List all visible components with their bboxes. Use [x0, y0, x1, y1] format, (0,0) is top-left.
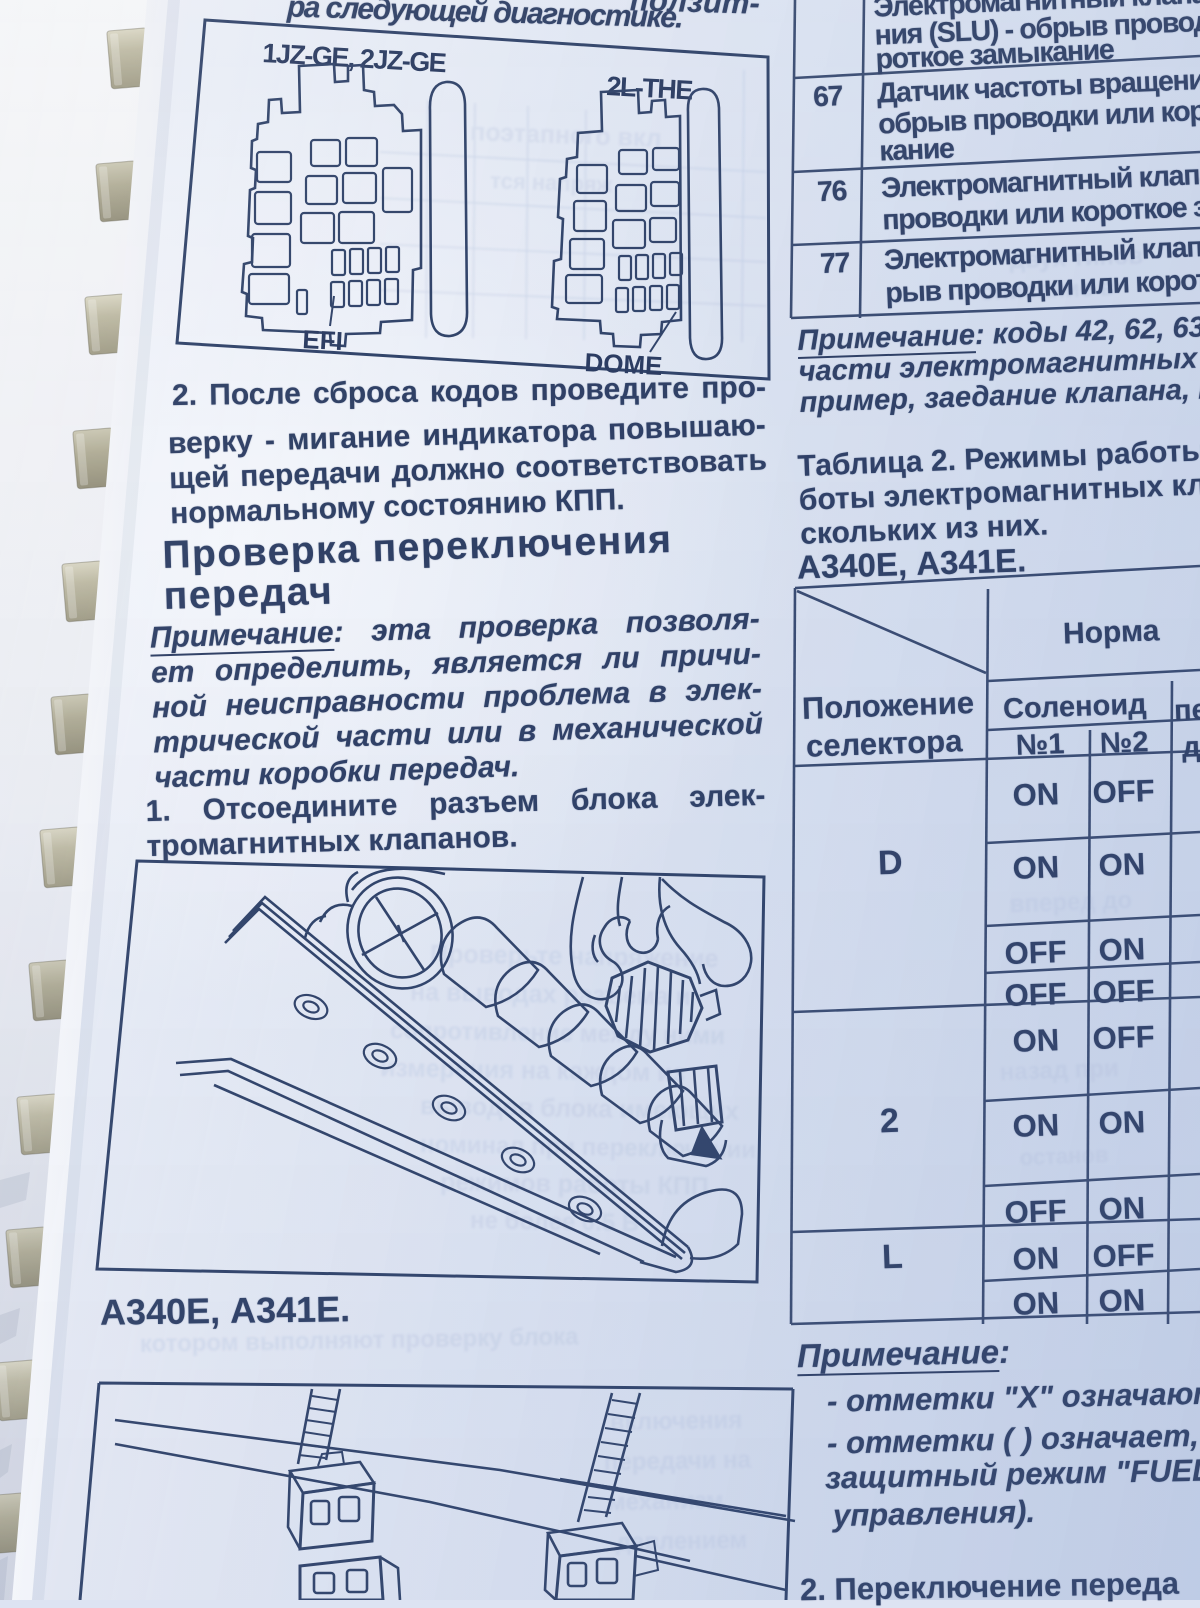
svg-text:1JZ-GE, 2JZ-GE: 1JZ-GE, 2JZ-GE [262, 38, 447, 78]
svg-text:останов: останов [1019, 1142, 1108, 1170]
svg-text:передачи на: передачи на [604, 1446, 752, 1476]
svg-text:на выводах разъема и: на выводах разъема и [410, 978, 691, 1011]
svg-text:выводов блока имеющих: выводов блока имеющих [420, 1092, 739, 1126]
svg-text:Проверьте напряжение: Проверьте напряжение [430, 940, 719, 973]
svg-text:2L-THE: 2L-THE [606, 71, 693, 105]
svg-text:вперед до: вперед до [1009, 887, 1132, 918]
svg-text:поэтапного вкл: поэтапного вкл [470, 118, 662, 153]
svg-text:измерения на каждом из: измерения на каждом из [380, 1054, 685, 1087]
svg-text:EFI: EFI [302, 324, 344, 356]
svg-text:режимов работы КПП: режимов работы КПП [440, 1168, 709, 1201]
